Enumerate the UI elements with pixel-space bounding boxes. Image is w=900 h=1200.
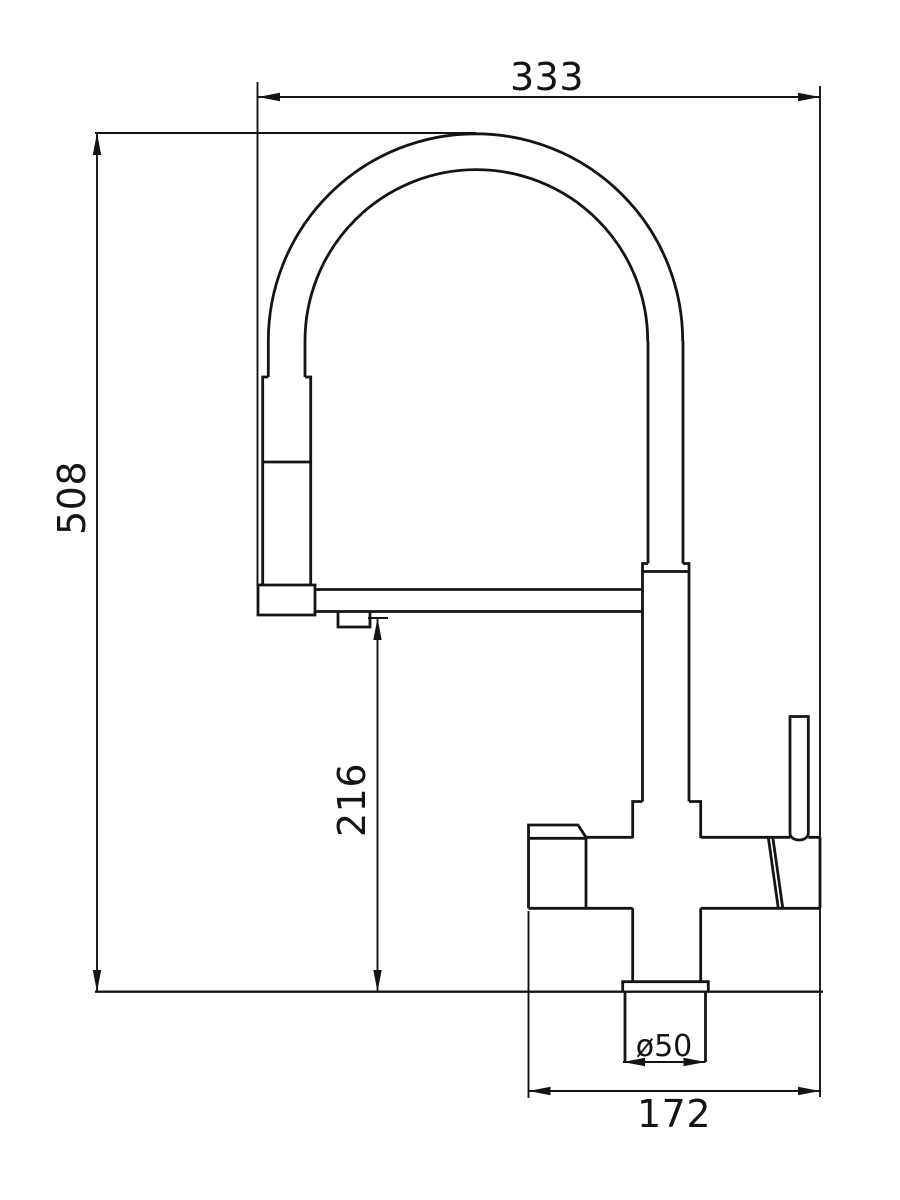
dim-333-arrow-right bbox=[798, 93, 820, 101]
hose-arch bbox=[268, 134, 683, 564]
riser-neck bbox=[633, 564, 701, 839]
handle-lever bbox=[790, 717, 808, 840]
side-port bbox=[529, 825, 587, 908]
dim-172-arrow-left bbox=[529, 1087, 551, 1095]
dim-body-span: 172 bbox=[529, 911, 821, 1136]
dim-172-label: 172 bbox=[637, 1092, 711, 1136]
valve-body bbox=[529, 837, 821, 981]
dim-172-arrow-right bbox=[798, 1087, 820, 1095]
dim-base-diameter: ø50 bbox=[623, 1029, 706, 1066]
dim-172-lines bbox=[529, 911, 821, 1098]
spout-bar bbox=[315, 590, 643, 628]
dim-333-label: 333 bbox=[510, 55, 584, 99]
dim-508-arrow-top bbox=[93, 133, 101, 155]
faucet-outline bbox=[95, 134, 823, 1062]
dim-333-arrow-left bbox=[258, 93, 280, 101]
technical-drawing-page: 333 508 216 ø50 172 bbox=[0, 0, 900, 1200]
dim-508-label: 508 bbox=[50, 461, 94, 535]
dim-spout-height: 216 bbox=[330, 618, 388, 992]
dim-216-arrow-top bbox=[373, 618, 381, 640]
spray-head bbox=[258, 377, 315, 615]
dim-216-label: 216 bbox=[330, 763, 374, 837]
dim-overall-width: 333 bbox=[258, 55, 821, 1097]
dim-508-arrow-bottom bbox=[93, 970, 101, 992]
dim-50-label: ø50 bbox=[636, 1029, 693, 1064]
dim-216-arrow-bottom bbox=[373, 970, 381, 992]
faucet-technical-drawing: 333 508 216 ø50 172 bbox=[0, 0, 900, 1200]
